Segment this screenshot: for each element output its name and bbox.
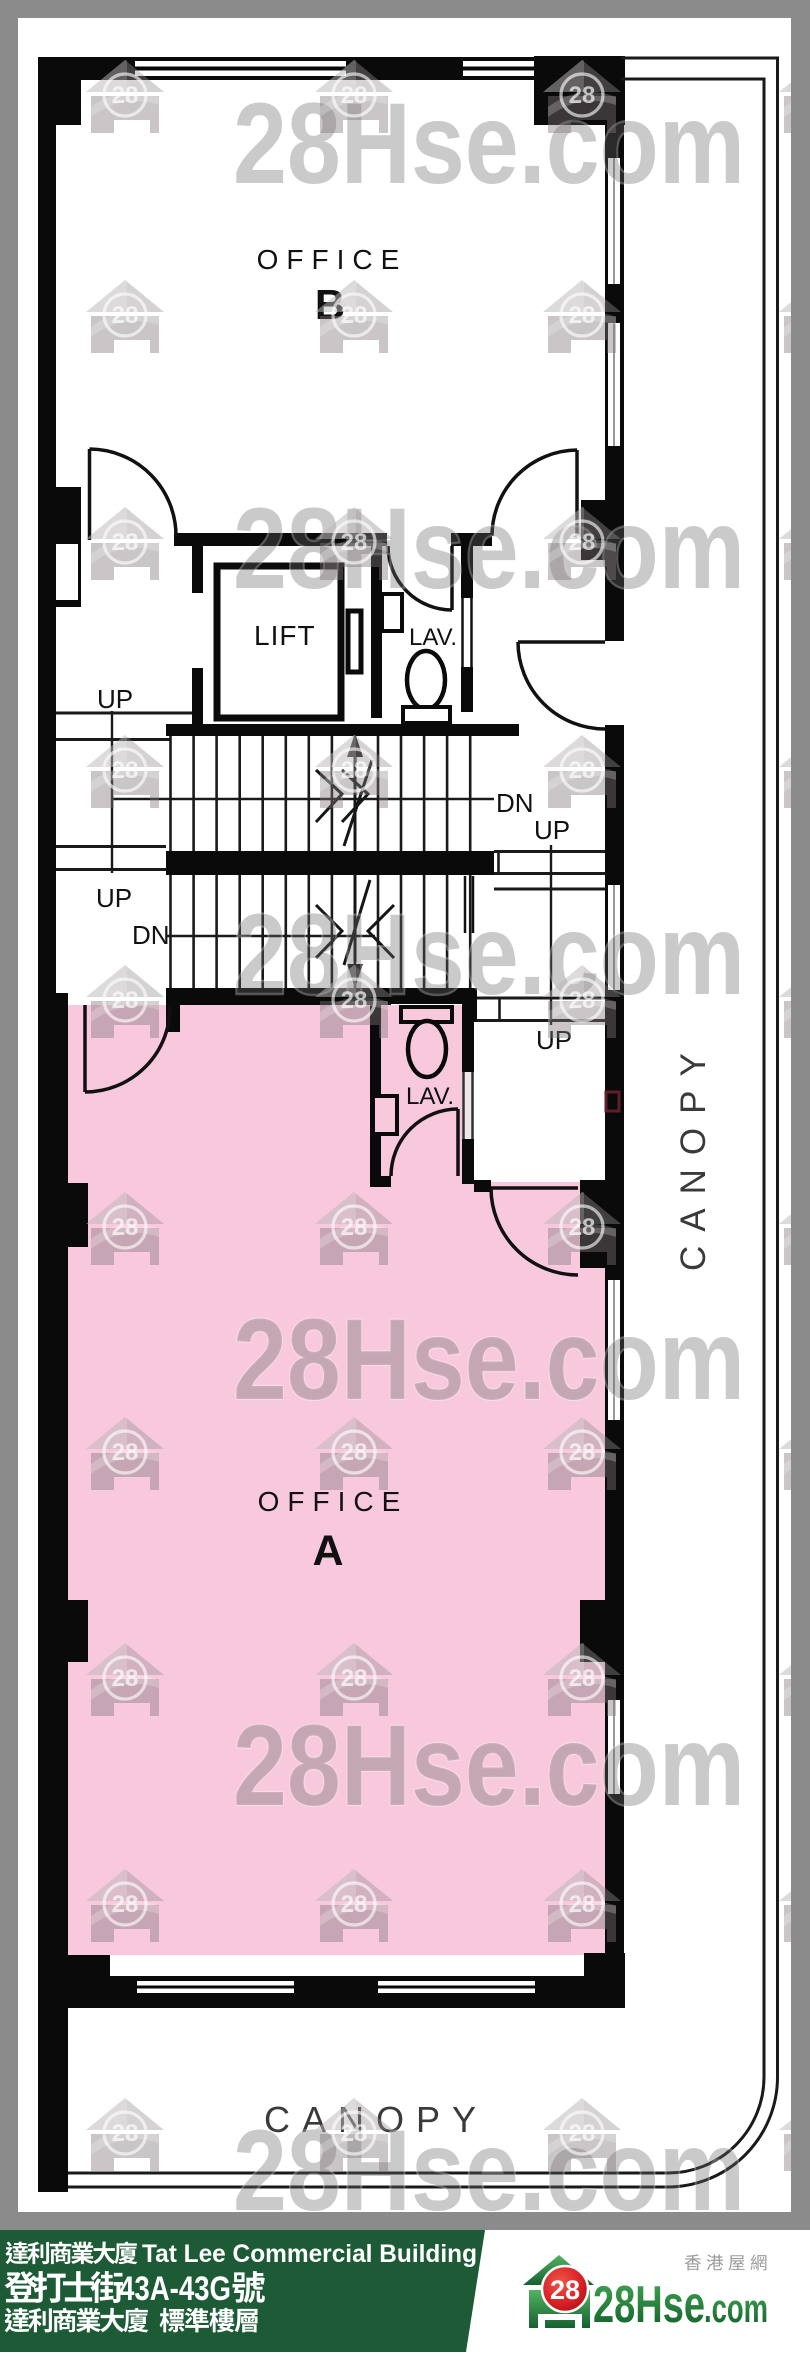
svg-text:28: 28 — [112, 302, 139, 329]
svg-text:28: 28 — [112, 529, 139, 556]
svg-text:.com: .com — [704, 2287, 768, 2331]
svg-text:28: 28 — [569, 1214, 596, 1241]
svg-text:28: 28 — [341, 1439, 368, 1466]
svg-text:28: 28 — [341, 987, 368, 1014]
svg-text:28: 28 — [341, 1665, 368, 1692]
svg-text:28Hse.com: 28Hse.com — [233, 485, 745, 613]
svg-text:28: 28 — [569, 1665, 596, 1692]
svg-text:OFFICE: OFFICE — [258, 1486, 409, 1517]
svg-text:UP: UP — [534, 815, 570, 845]
svg-text:28: 28 — [112, 1214, 139, 1241]
svg-text:28: 28 — [569, 987, 596, 1014]
svg-text:CANOPY: CANOPY — [674, 1039, 713, 1271]
svg-text:28: 28 — [569, 529, 596, 556]
svg-text:28Hse.com: 28Hse.com — [233, 1296, 745, 1424]
svg-text:28Hse.com: 28Hse.com — [233, 80, 745, 208]
svg-text:UP: UP — [96, 883, 132, 913]
svg-text:28: 28 — [112, 757, 139, 784]
svg-text:28: 28 — [569, 302, 596, 329]
svg-text:28: 28 — [341, 1891, 368, 1918]
svg-text:28: 28 — [569, 2120, 596, 2147]
svg-text:28: 28 — [569, 1439, 596, 1466]
svg-text:28: 28 — [341, 2120, 368, 2147]
svg-text:UP: UP — [97, 684, 133, 714]
svg-text:28: 28 — [569, 1891, 596, 1918]
svg-text:28Hse.com: 28Hse.com — [233, 891, 745, 1019]
svg-text:28: 28 — [341, 757, 368, 784]
svg-text:28: 28 — [341, 82, 368, 109]
svg-text:28: 28 — [550, 2275, 580, 2305]
svg-text:28: 28 — [112, 987, 139, 1014]
svg-text:A: A — [312, 1527, 343, 1575]
svg-text:28: 28 — [112, 1891, 139, 1918]
svg-text:28: 28 — [112, 1439, 139, 1466]
svg-text:LIFT: LIFT — [254, 620, 316, 651]
svg-text:DN: DN — [132, 920, 170, 950]
svg-text:28: 28 — [112, 82, 139, 109]
svg-text:Tat Lee Commercial Building: Tat Lee Commercial Building — [142, 2240, 477, 2268]
svg-text:28: 28 — [341, 1214, 368, 1241]
svg-text:28Hse.com: 28Hse.com — [233, 1702, 745, 1830]
svg-text:28: 28 — [569, 82, 596, 109]
svg-text:OFFICE: OFFICE — [257, 244, 408, 275]
svg-text:LAV.: LAV. — [406, 1083, 454, 1110]
svg-text:28: 28 — [341, 529, 368, 556]
svg-text:28: 28 — [112, 1665, 139, 1692]
svg-text:28: 28 — [112, 2120, 139, 2147]
svg-text:28: 28 — [569, 757, 596, 784]
svg-text:28: 28 — [341, 302, 368, 329]
svg-text:DN: DN — [496, 788, 534, 818]
svg-text:LAV.: LAV. — [409, 624, 457, 651]
svg-text:43A-43G: 43A-43G — [119, 2270, 231, 2308]
svg-text:28Hse: 28Hse — [593, 2276, 705, 2334]
